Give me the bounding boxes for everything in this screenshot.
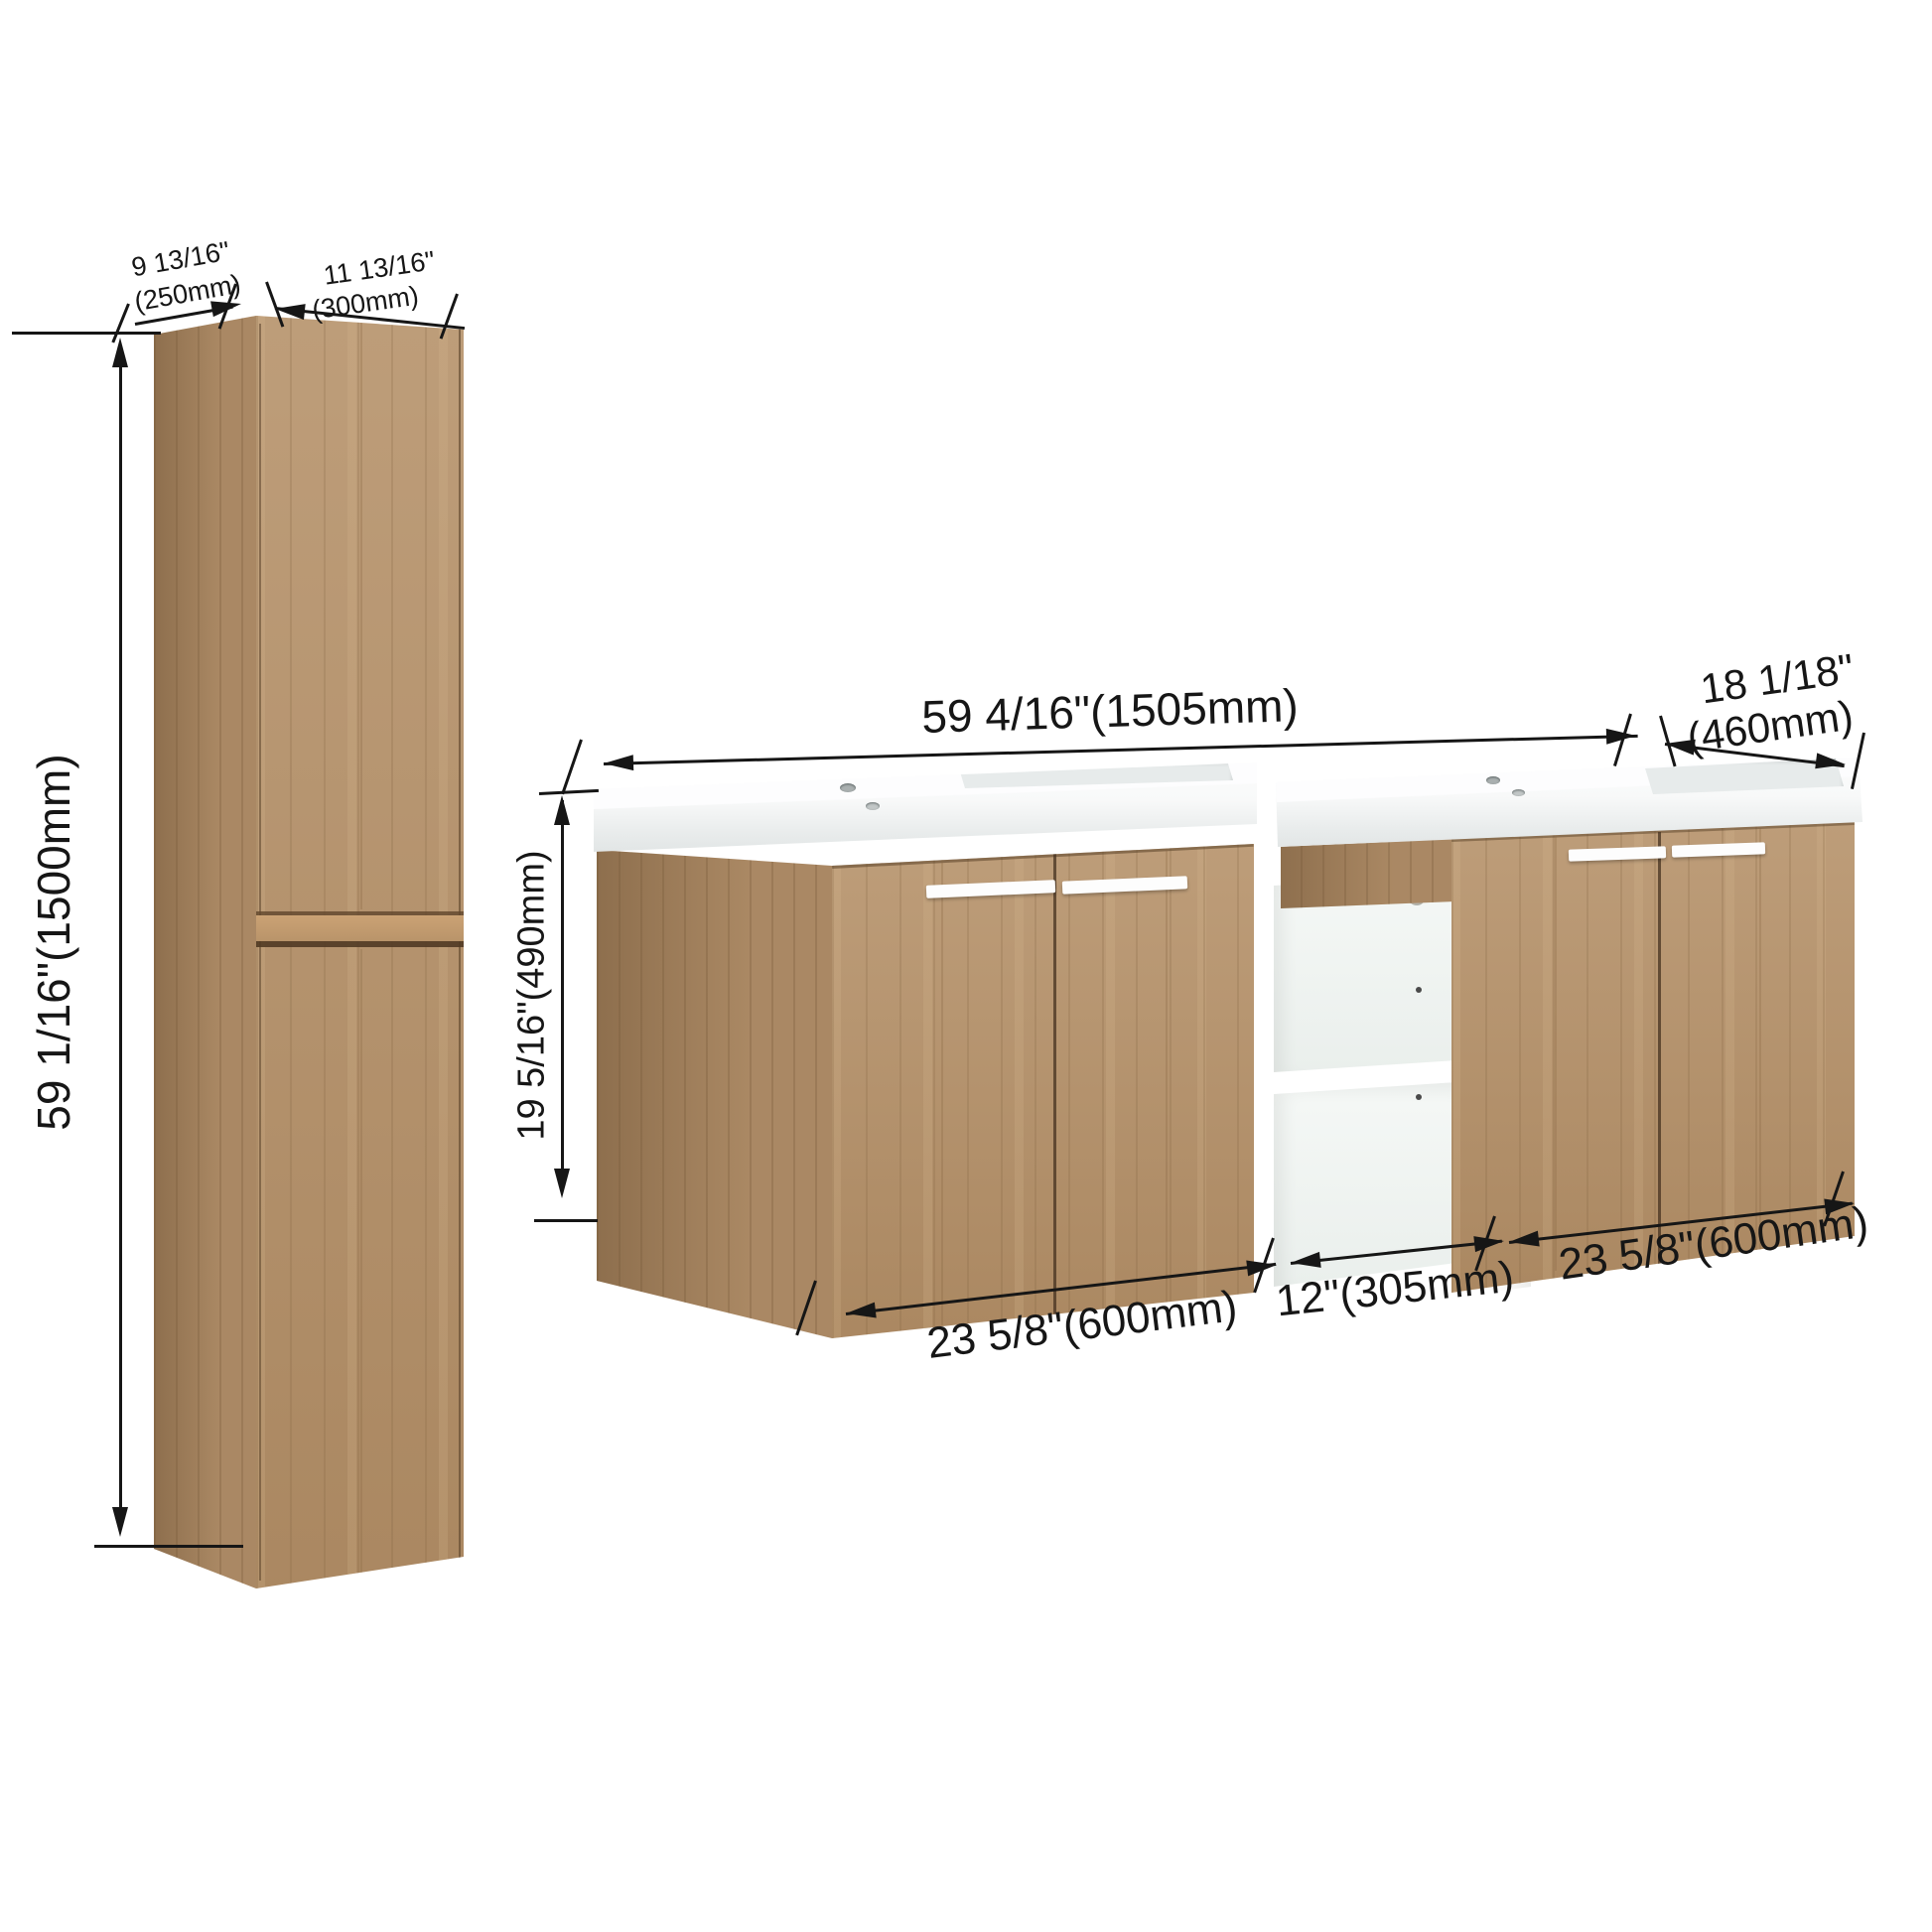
right-vanity-side-strip	[1279, 836, 1455, 910]
left-vanity-plank-seam-1	[941, 859, 943, 1325]
tall-cabinet-height-line	[119, 345, 122, 1509]
left-sink-overflow-hole	[866, 802, 880, 810]
vanity-height-line	[561, 800, 564, 1173]
tall-cabinet-top-extension-tick	[12, 332, 161, 335]
left-vanity-door-seam	[1053, 851, 1056, 1329]
left-sink-top-surface	[594, 758, 1257, 817]
right-vanity-plank-seam-1	[1555, 834, 1557, 1271]
shelf-pin-hole-upper	[1416, 987, 1422, 993]
tall-cabinet-bottom-extension-tick	[94, 1545, 243, 1548]
vanity-overall-width-label: 59 4/16"(1505mm)	[811, 675, 1408, 748]
left-sink-faucet-hole	[840, 783, 856, 792]
left-vanity-front	[832, 839, 1254, 1340]
left-vanity-side-panel	[597, 842, 832, 1343]
right-vanity-door-seam	[1658, 832, 1661, 1281]
arrowhead-left-icon	[845, 1303, 877, 1321]
right-vanity-plank-seam-2	[1759, 828, 1761, 1257]
right-sink-basin-recess	[1639, 759, 1844, 796]
vanity-height-label: 19 5/16"(490mm)	[511, 599, 554, 1393]
arrowhead-left-icon	[604, 755, 633, 771]
vanity-overall-width-line	[604, 735, 1638, 765]
tall-cabinet-front	[256, 316, 464, 1588]
tall-cabinet-recessed-handle-band	[256, 915, 464, 941]
tall-cabinet-lower-door-top-groove	[256, 941, 464, 947]
left-vanity-door-handle-left	[926, 880, 1055, 898]
tall-cabinet-plank-seam-upper	[360, 316, 362, 909]
tall-cabinet-door-left-seam	[259, 324, 261, 1581]
left-vanity-plank-seam-2	[1166, 847, 1168, 1304]
right-vanity-door-handle-right	[1672, 842, 1765, 857]
tall-cabinet-plank-seam-lower	[360, 949, 362, 1585]
arrowhead-up-icon	[554, 795, 570, 825]
tall-cabinet-door-right-seam	[459, 326, 461, 1579]
tall-cabinet-side-panel	[154, 316, 256, 1588]
vanity-dimension-diagram: 59 1/16"(1500mm) 9 13/16" (250mm) 11 13/…	[0, 0, 1932, 1932]
left-vanity-sink-top	[594, 758, 1257, 854]
arrowhead-down-icon	[112, 1507, 128, 1537]
arrowhead-down-icon	[554, 1169, 570, 1198]
tall-cabinet-height-label: 59 1/16"(1500mm)	[27, 545, 80, 1339]
right-vanity-door-handle-left	[1569, 846, 1666, 861]
vanity-overall-left-slash	[561, 740, 583, 795]
right-sink-overflow-hole	[1512, 789, 1525, 796]
left-vanity-top-shadow	[832, 843, 1254, 869]
shelf-pin-hole-lower	[1416, 1094, 1422, 1100]
left-vanity-door-handle-right	[1062, 876, 1187, 894]
right-sink-faucet-hole	[1486, 776, 1500, 784]
arrowhead-left-icon	[1290, 1252, 1321, 1271]
